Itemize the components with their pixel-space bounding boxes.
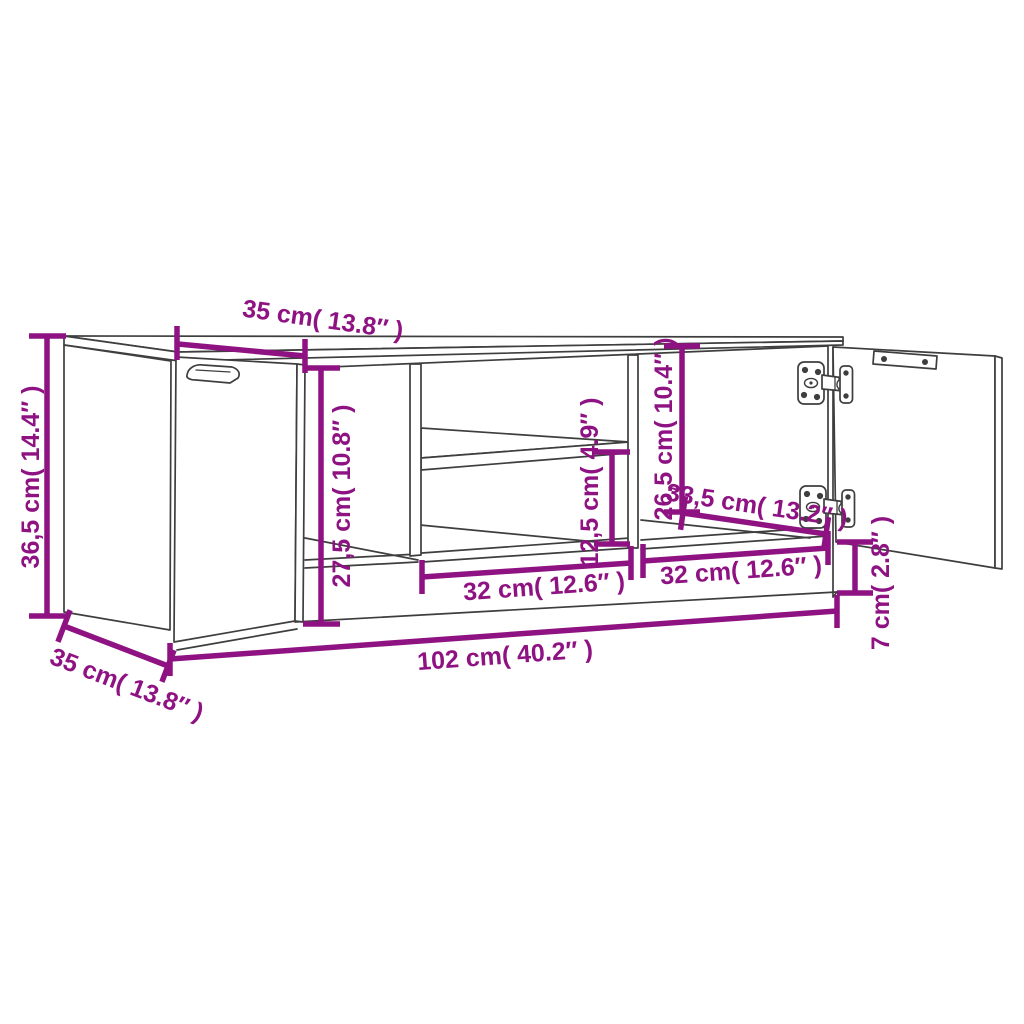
dim-left-opening-height: 27,5 cm( 10.8″ ) (303, 368, 356, 624)
divider-left (410, 364, 421, 556)
dim-shelf-space-height: 12,5 cm( 4.9″ ) (576, 397, 630, 566)
handle-screw-left (881, 356, 887, 362)
diagram-canvas: 36,5 cm( 14.4″ ) 35 cm( 13.8″ ) 27,5 cm(… (0, 0, 1024, 1024)
left-door-face (174, 357, 297, 642)
dim-label-base-height: 7 cm( 2.8″ ) (867, 516, 895, 650)
right-door-face (833, 347, 995, 568)
dim-right-opening-width: 32 cm( 12.6″ ) (643, 531, 828, 590)
left-side-panel (64, 345, 171, 630)
dimension-diagram: 36,5 cm( 14.4″ ) 35 cm( 13.8″ ) 27,5 cm(… (0, 0, 1024, 1024)
dim-overall-height: 36,5 cm( 14.4″ ) (17, 336, 66, 616)
right-door-edge (995, 356, 1002, 569)
dim-label-shelf-space-height: 12,5 cm( 4.9″ ) (576, 397, 604, 566)
dim-label-depth: 35 cm( 13.8″ ) (46, 643, 207, 727)
left-door-edge (295, 364, 305, 622)
dim-label-overall-height: 36,5 cm( 14.4″ ) (17, 386, 45, 569)
left-door-handle (187, 365, 239, 383)
cabinet-drawing (64, 336, 1002, 650)
hinge-top-icon (798, 362, 853, 404)
right-door-open (833, 347, 1002, 569)
left-door-open (174, 357, 305, 650)
handle-screw-right (922, 359, 928, 365)
dim-label-left-opening-height: 27,5 cm( 10.8″ ) (328, 405, 356, 588)
